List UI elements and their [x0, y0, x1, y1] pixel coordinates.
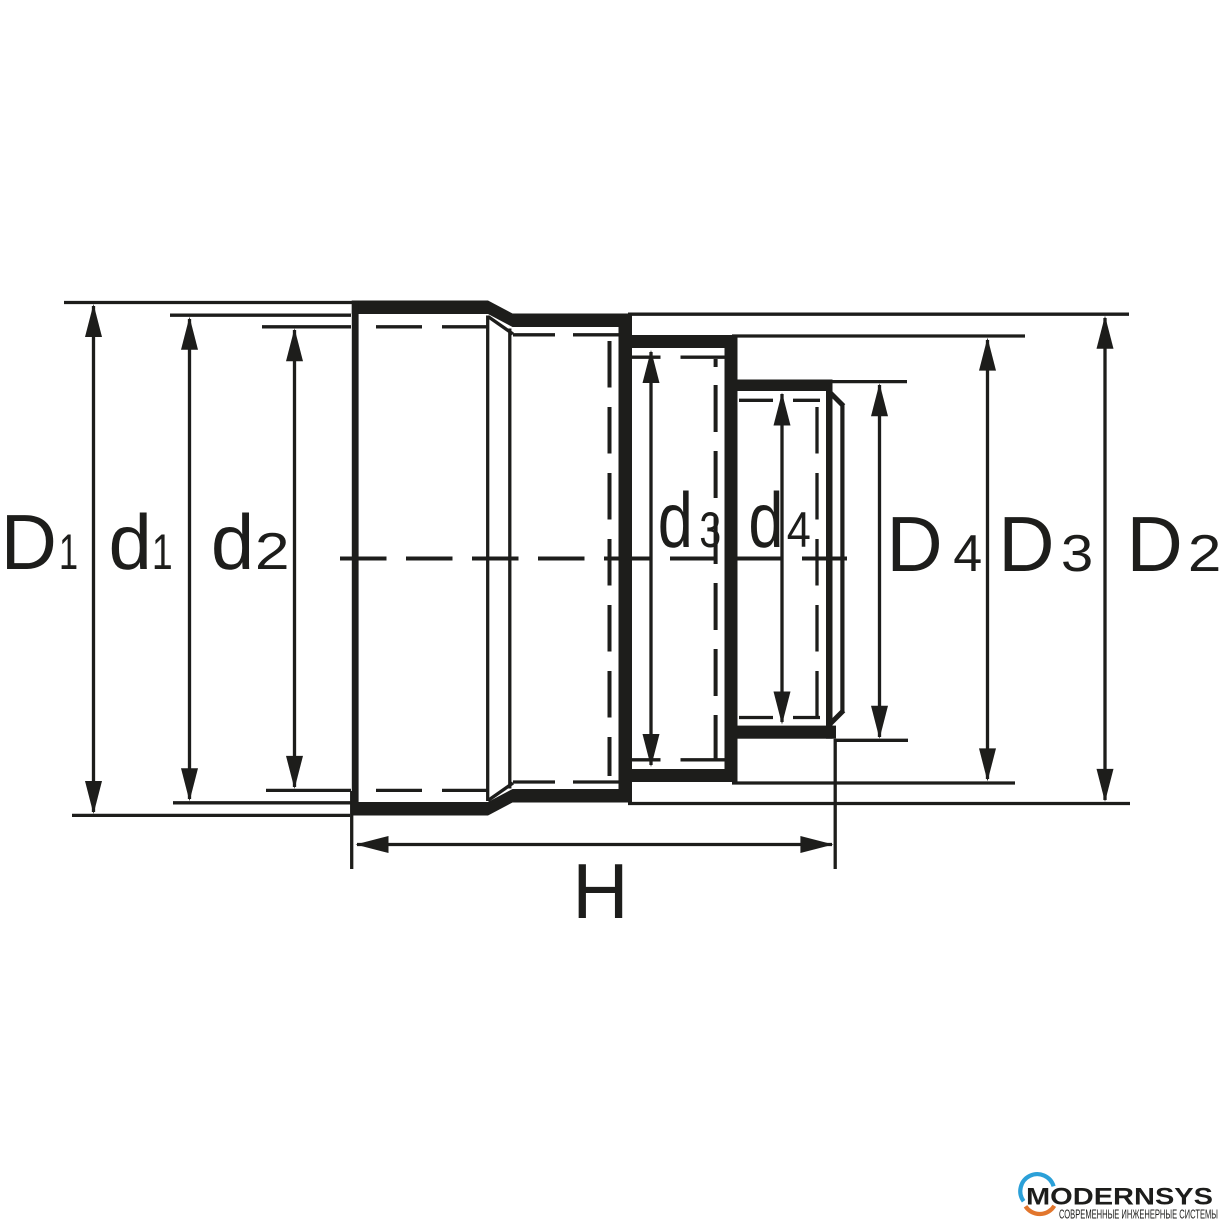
svg-text:3: 3 — [1061, 524, 1093, 582]
svg-text:D: D — [998, 500, 1054, 588]
svg-text:D: D — [886, 500, 942, 588]
svg-text:1: 1 — [59, 525, 78, 581]
svg-text:3: 3 — [699, 501, 721, 558]
svg-text:D: D — [1127, 500, 1183, 588]
svg-text:H: H — [572, 847, 628, 935]
svg-text:d: d — [109, 498, 152, 586]
svg-text:2: 2 — [255, 523, 290, 581]
svg-text:d: d — [211, 498, 254, 586]
svg-text:d: d — [748, 478, 783, 565]
svg-text:MODERNSYS: MODERNSYS — [1026, 1184, 1213, 1211]
svg-text:4: 4 — [953, 525, 982, 583]
svg-text:2: 2 — [1188, 524, 1219, 582]
svg-text:D: D — [1, 498, 57, 586]
svg-text:4: 4 — [787, 502, 811, 558]
svg-text:d: d — [658, 478, 693, 565]
svg-text:СОВРЕМЕННЫЕ ИНЖЕНЕРНЫЕ СИСТЕМЫ: СОВРЕМЕННЫЕ ИНЖЕНЕРНЫЕ СИСТЕМЫ — [1059, 1208, 1218, 1219]
svg-text:1: 1 — [152, 525, 173, 580]
